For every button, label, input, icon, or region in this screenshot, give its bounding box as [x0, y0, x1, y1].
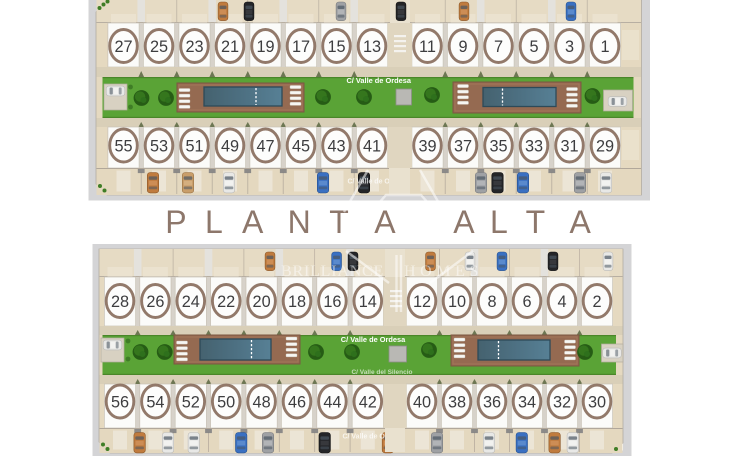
svg-text:32: 32 — [553, 393, 571, 411]
svg-text:15: 15 — [327, 38, 345, 56]
svg-text:19: 19 — [256, 38, 274, 56]
svg-text:23: 23 — [185, 38, 203, 56]
svg-text:12: 12 — [413, 293, 431, 311]
svg-text:8: 8 — [487, 293, 496, 311]
svg-text:51: 51 — [185, 137, 203, 155]
svg-text:C/ Valle de Ordesa: C/ Valle de Ordesa — [341, 335, 406, 344]
svg-text:52: 52 — [182, 393, 200, 411]
svg-text:50: 50 — [217, 393, 235, 411]
svg-text:36: 36 — [483, 393, 501, 411]
svg-text:45: 45 — [292, 137, 310, 155]
svg-text:48: 48 — [253, 393, 271, 411]
svg-text:25: 25 — [150, 38, 168, 56]
svg-text:29: 29 — [596, 137, 614, 155]
svg-text:44: 44 — [323, 393, 341, 411]
svg-text:21: 21 — [221, 38, 239, 56]
svg-text:55: 55 — [114, 137, 132, 155]
svg-text:53: 53 — [150, 137, 168, 155]
svg-text:33: 33 — [525, 137, 543, 155]
svg-text:10: 10 — [448, 293, 466, 311]
svg-text:24: 24 — [182, 293, 200, 311]
svg-text:9: 9 — [458, 38, 467, 56]
svg-text:30: 30 — [588, 393, 606, 411]
svg-text:17: 17 — [292, 38, 310, 56]
svg-text:43: 43 — [327, 137, 345, 155]
svg-text:31: 31 — [560, 137, 578, 155]
svg-text:C/ Valle del Silencio: C/ Valle del Silencio — [351, 369, 412, 376]
svg-text:22: 22 — [217, 293, 235, 311]
svg-text:49: 49 — [221, 137, 239, 155]
svg-text:18: 18 — [288, 293, 306, 311]
svg-text:56: 56 — [111, 393, 129, 411]
svg-text:13: 13 — [363, 38, 381, 56]
svg-text:20: 20 — [253, 293, 271, 311]
svg-text:5: 5 — [529, 38, 538, 56]
svg-text:3: 3 — [565, 38, 574, 56]
svg-text:HOMES: HOMES — [404, 263, 483, 280]
svg-text:1: 1 — [600, 38, 609, 56]
svg-text:35: 35 — [489, 137, 507, 155]
svg-text:4: 4 — [557, 293, 566, 311]
svg-text:7: 7 — [494, 38, 503, 56]
svg-text:37: 37 — [454, 137, 472, 155]
svg-text:C/ Valle de Ordesa: C/ Valle de Ordesa — [346, 76, 411, 85]
svg-text:41: 41 — [363, 137, 381, 155]
svg-text:16: 16 — [323, 293, 341, 311]
svg-text:11: 11 — [419, 38, 436, 56]
svg-text:46: 46 — [288, 393, 306, 411]
svg-text:39: 39 — [418, 137, 436, 155]
svg-text:47: 47 — [256, 137, 274, 155]
svg-text:14: 14 — [359, 293, 377, 311]
svg-text:BRILLIANCE: BRILLIANCE — [281, 263, 384, 280]
svg-text:6: 6 — [522, 293, 531, 311]
svg-text:34: 34 — [518, 393, 536, 411]
svg-text:54: 54 — [146, 393, 164, 411]
svg-text:28: 28 — [111, 293, 129, 311]
svg-text:42: 42 — [359, 393, 377, 411]
svg-text:26: 26 — [146, 293, 164, 311]
svg-text:38: 38 — [448, 393, 466, 411]
svg-text:40: 40 — [413, 393, 431, 411]
svg-text:27: 27 — [114, 38, 132, 56]
svg-text:2: 2 — [592, 293, 601, 311]
